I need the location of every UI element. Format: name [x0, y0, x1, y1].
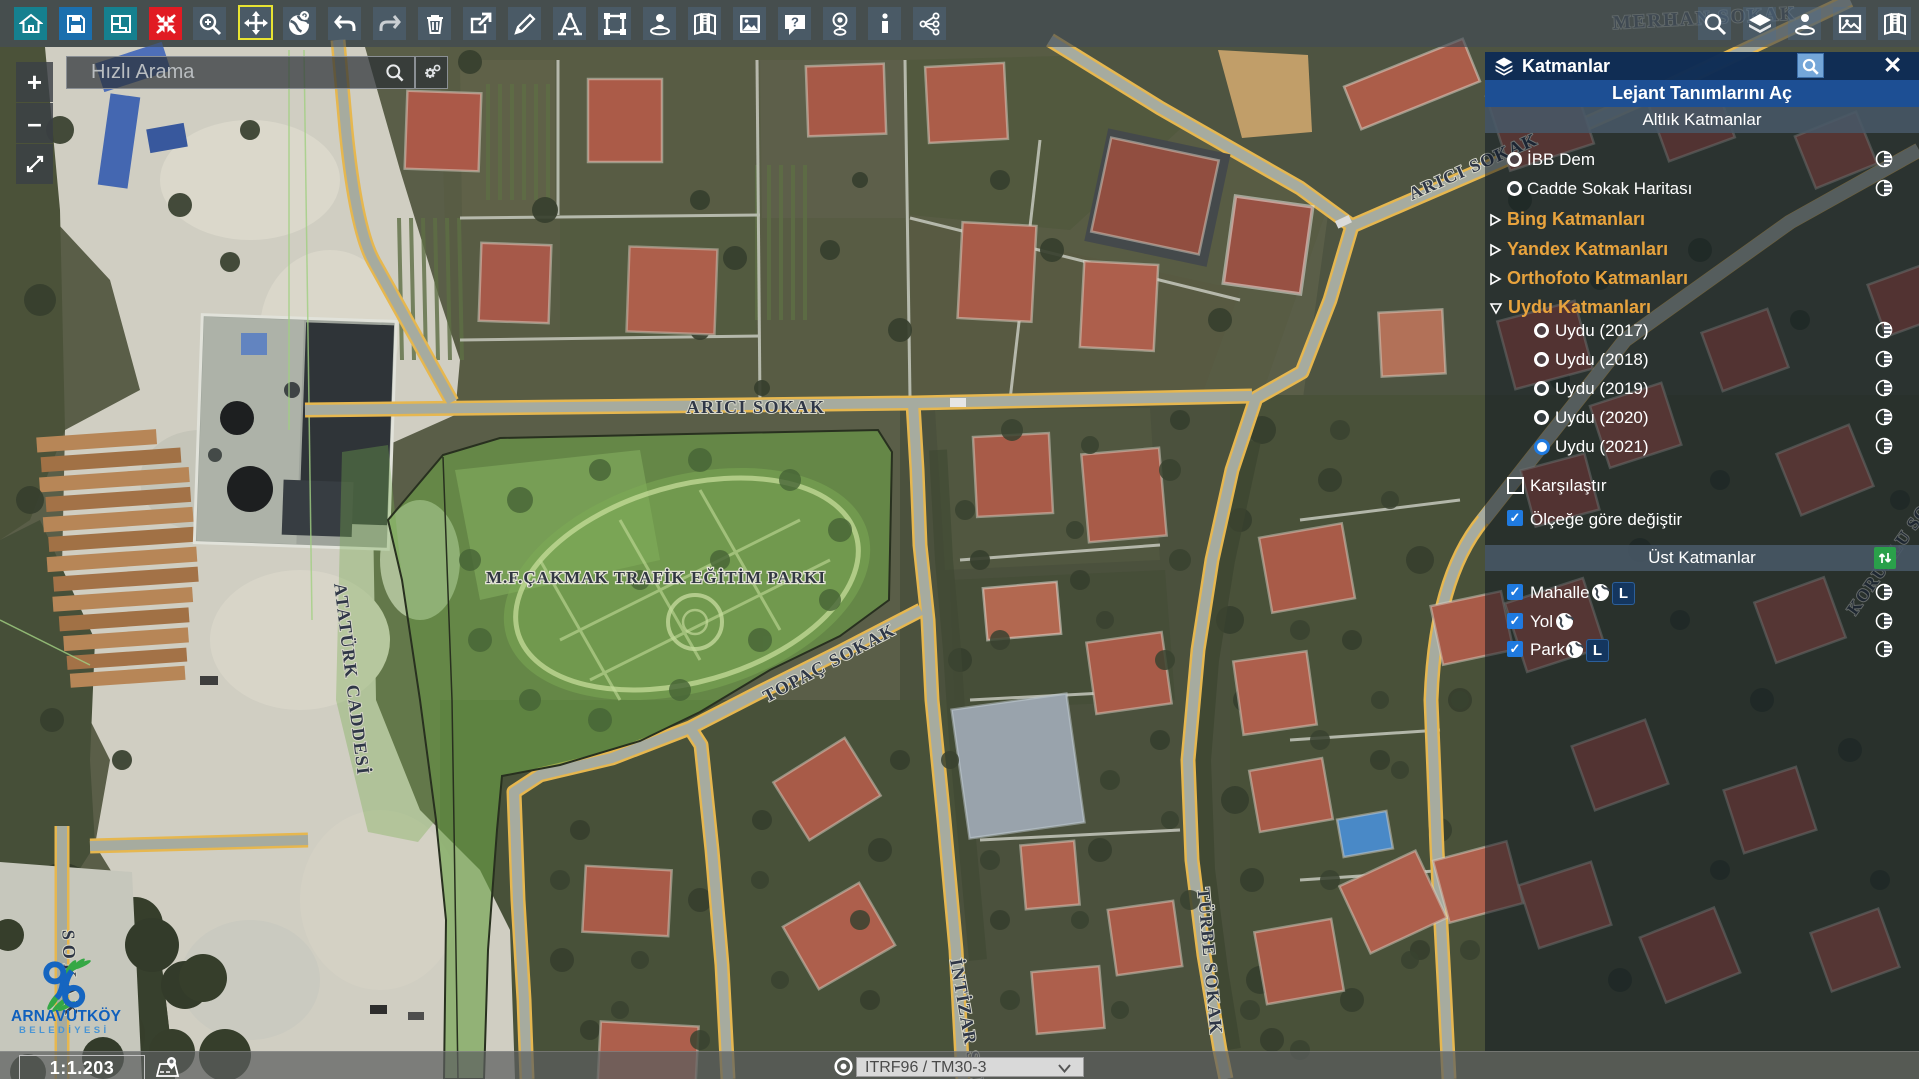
svg-text:BELEDİYESİ: BELEDİYESİ [19, 1025, 110, 1035]
svg-text:ARNAVUTKÖY: ARNAVUTKÖY [11, 1008, 122, 1025]
svg-text:?: ? [791, 14, 799, 29]
